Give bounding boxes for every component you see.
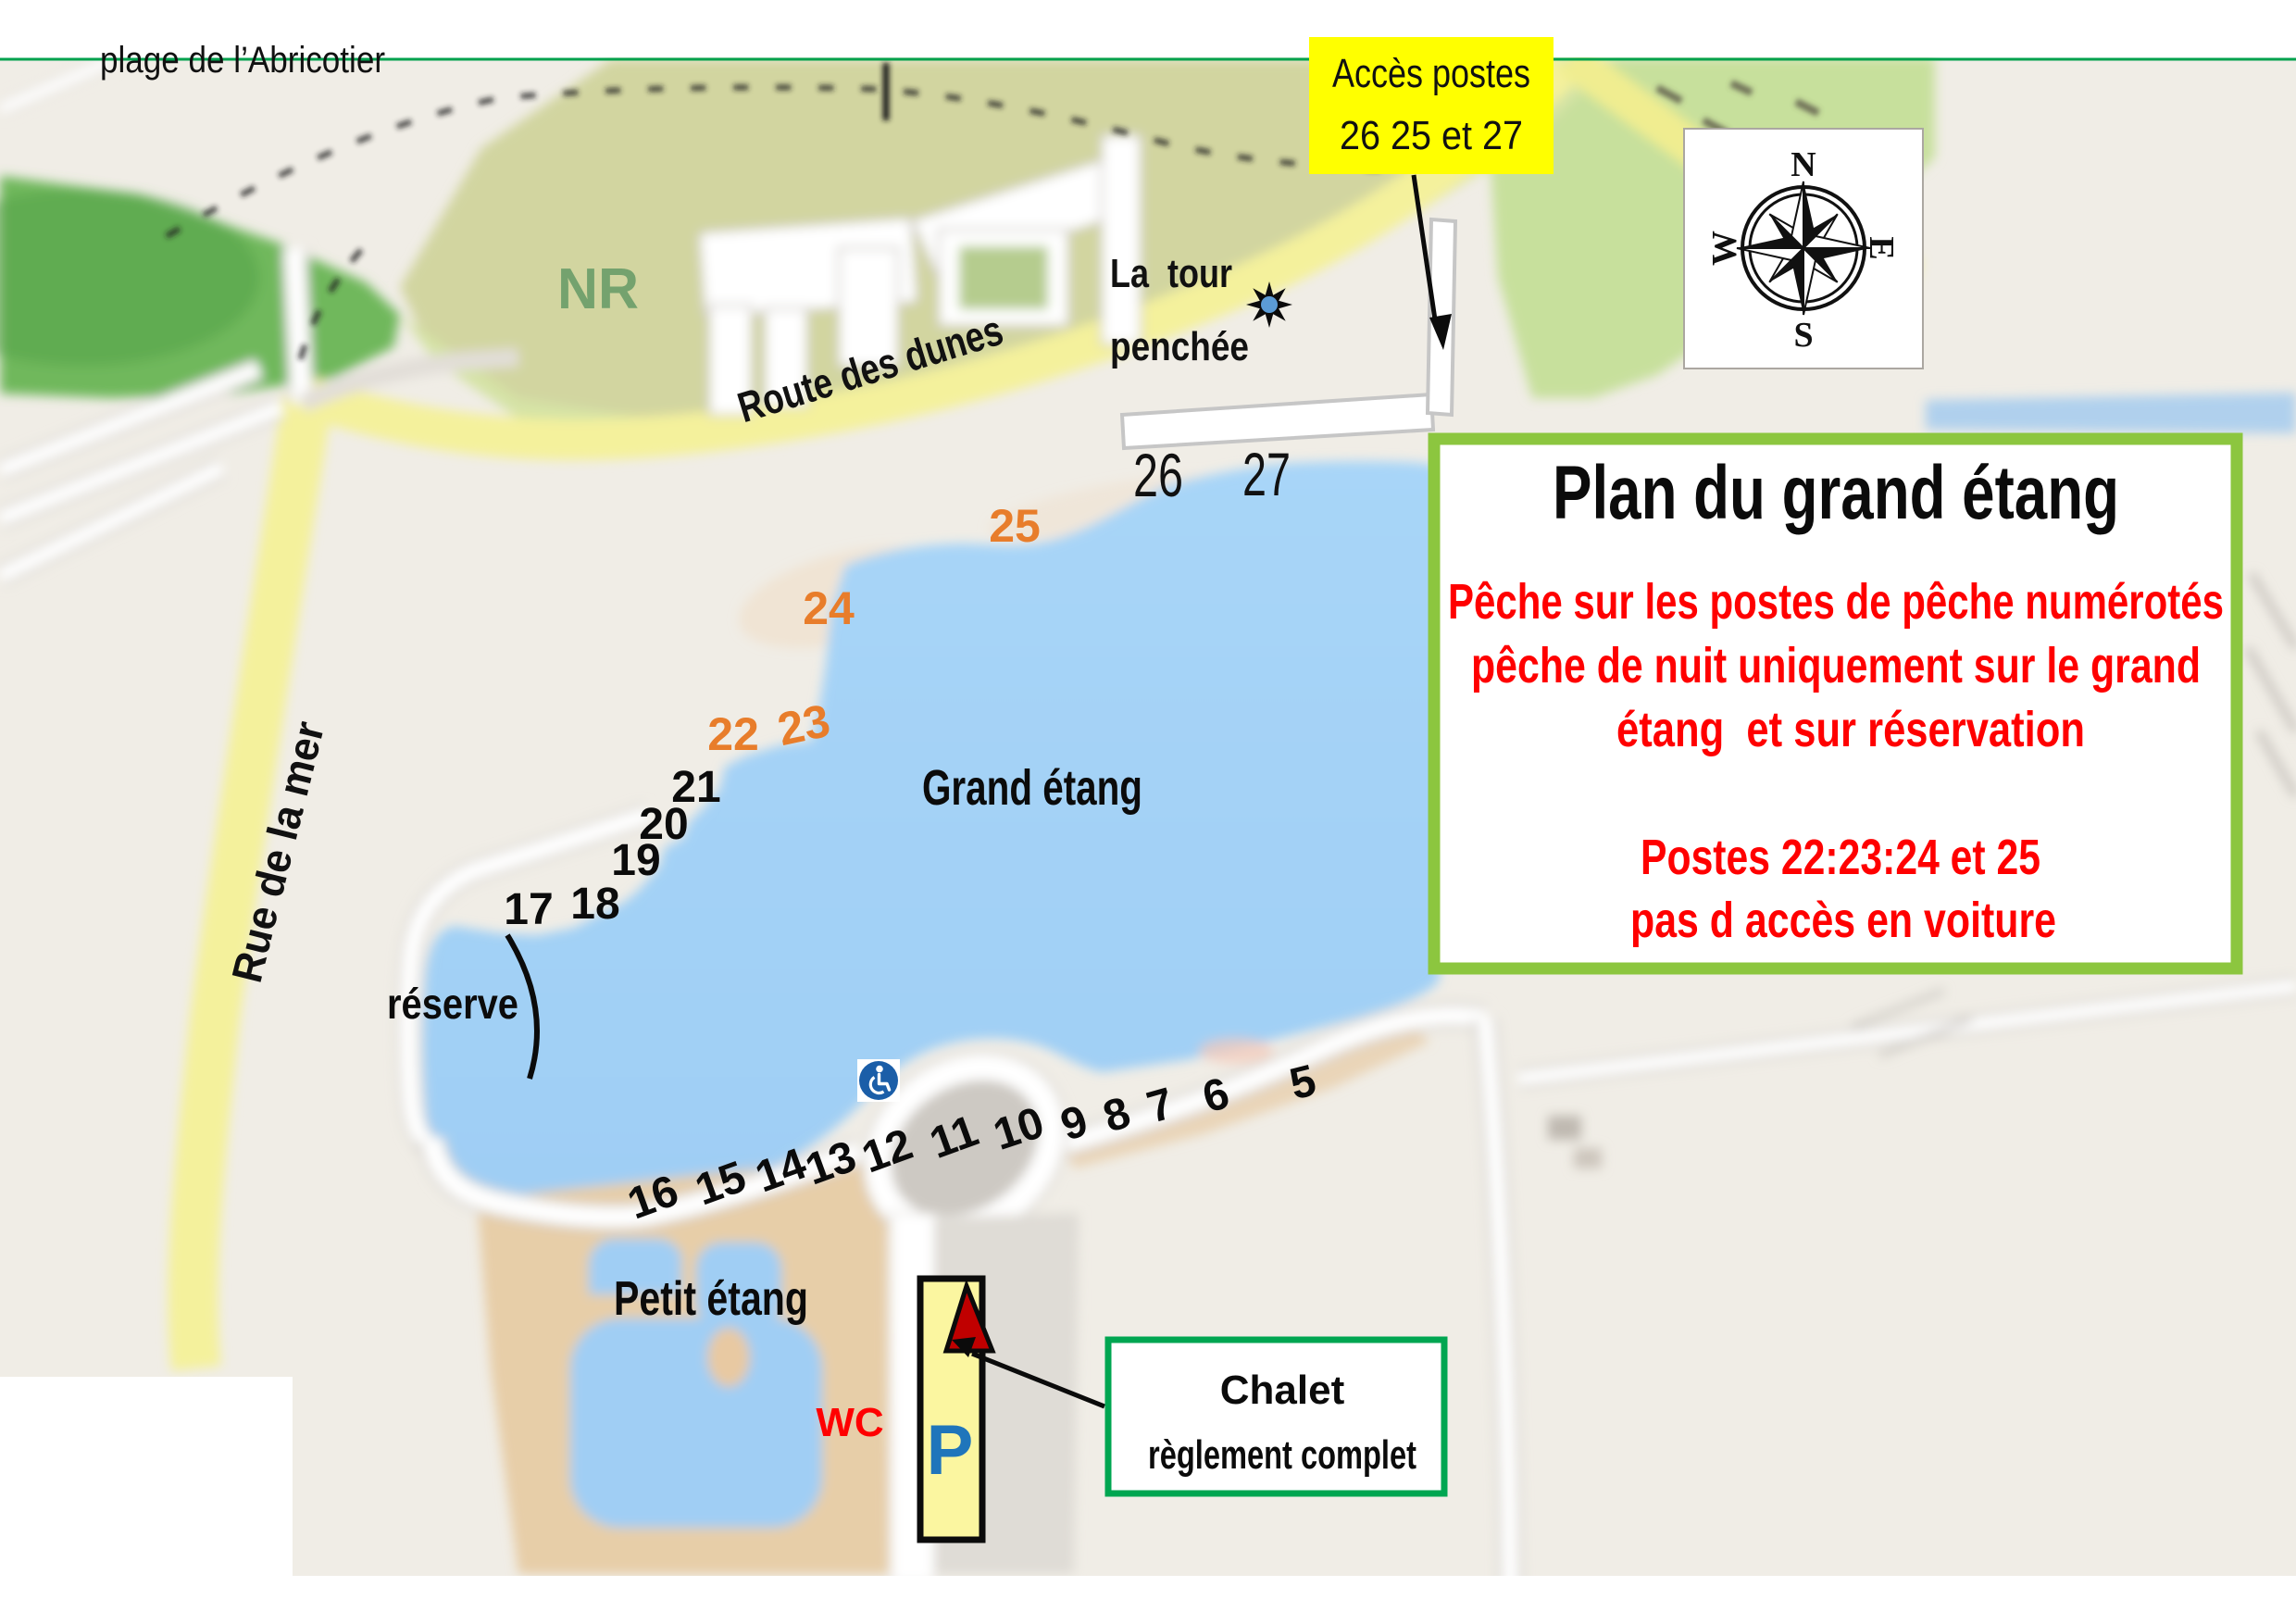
- svg-text:24: 24: [803, 582, 855, 634]
- svg-text:Plan du grand étang: Plan du grand étang: [1553, 451, 2119, 535]
- svg-text:19: 19: [611, 836, 660, 885]
- svg-text:18: 18: [570, 880, 619, 929]
- svg-text:pêche de nuit uniquement sur l: pêche de nuit uniquement sur le grand: [1471, 638, 2201, 693]
- svg-text:26: 26: [1133, 441, 1183, 509]
- svg-text:P: P: [927, 1411, 974, 1490]
- svg-text:E: E: [1862, 236, 1901, 259]
- svg-text:Petit étang: Petit étang: [614, 1272, 808, 1326]
- svg-text:Grand étang: Grand étang: [922, 760, 1142, 816]
- svg-text:27: 27: [1242, 440, 1291, 508]
- svg-text:pas d accès en voiture: pas d accès en voiture: [1630, 893, 2056, 948]
- svg-text:W: W: [1705, 231, 1744, 266]
- svg-text:Accès postes: Accès postes: [1332, 51, 1530, 96]
- svg-text:23: 23: [773, 694, 834, 756]
- svg-text:règlement complet: règlement complet: [1148, 1432, 1416, 1478]
- svg-text:22: 22: [707, 708, 759, 760]
- svg-text:plage de l’Abricotier: plage de l’Abricotier: [100, 40, 385, 81]
- svg-text:Pêche sur les postes de pêche: Pêche sur les postes de pêche numérotés: [1448, 574, 2224, 630]
- svg-text:25: 25: [989, 500, 1041, 552]
- svg-text:La tour: La tour: [1110, 251, 1232, 296]
- svg-text:N: N: [1791, 145, 1816, 184]
- svg-text:26 25 et 27: 26 25 et 27: [1340, 113, 1523, 158]
- svg-text:réserve: réserve: [387, 980, 518, 1028]
- svg-text:NR: NR: [557, 257, 639, 321]
- svg-text:Chalet: Chalet: [1220, 1368, 1345, 1413]
- svg-text:17: 17: [504, 885, 553, 934]
- svg-text:S: S: [1793, 316, 1813, 355]
- svg-text:étang et sur réservation: étang et sur réservation: [1616, 702, 2085, 757]
- svg-text:WC: WC: [816, 1400, 883, 1445]
- svg-text:penchée: penchée: [1110, 324, 1249, 369]
- svg-text:Postes 22:23:24 et 25: Postes 22:23:24 et 25: [1641, 830, 2040, 885]
